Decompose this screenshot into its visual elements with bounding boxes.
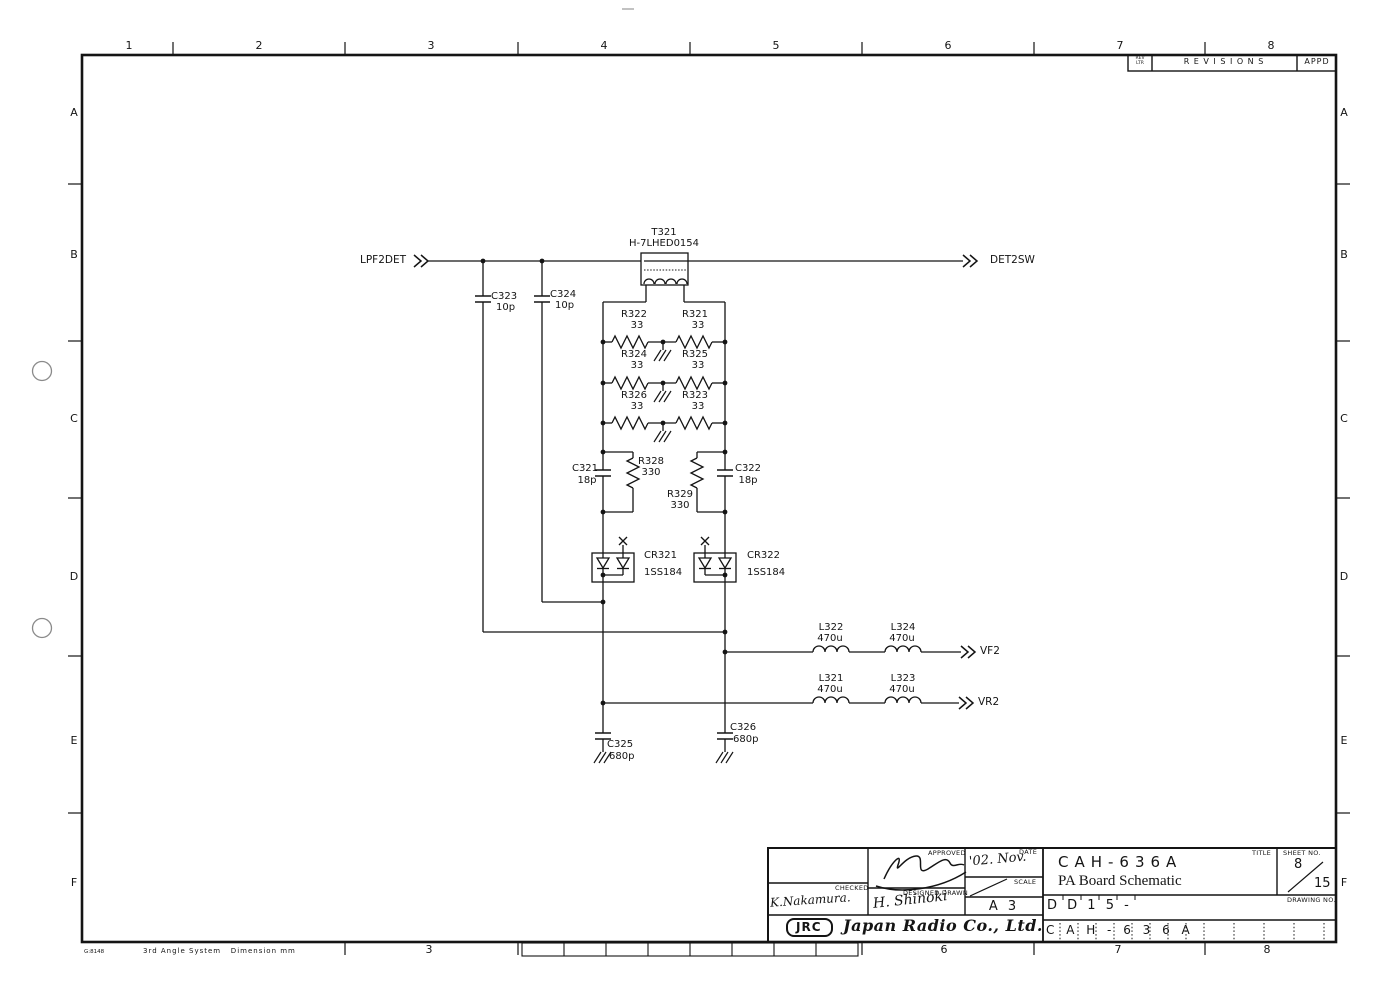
- junction-dots: [481, 259, 728, 706]
- label-l321-ref: L321: [819, 673, 844, 684]
- zone-row-a-right: A: [1340, 107, 1348, 119]
- label-l322-ref: L322: [819, 622, 844, 633]
- zone-row-e-right: E: [1341, 735, 1348, 747]
- punch-holes: [33, 362, 52, 638]
- transformer-t321-symbol: [641, 253, 688, 285]
- label-l323-ref: L323: [891, 673, 916, 684]
- approved-signature: [876, 856, 966, 890]
- label-c321-ref: C321: [572, 463, 598, 474]
- drawing-canvas: [0, 0, 1400, 989]
- paper-size: A 3: [989, 900, 1019, 914]
- label-c322-ref: C322: [735, 463, 761, 474]
- title-label: TITLE: [1252, 850, 1271, 857]
- zone-row-d-right: D: [1340, 571, 1348, 583]
- company-name: Japan Radio Co., Ltd.: [843, 917, 1043, 935]
- port-label-vr2: VR2: [978, 697, 999, 709]
- zone-col-4: 4: [601, 40, 608, 52]
- label-c325-ref: C325: [607, 739, 633, 750]
- jrc-logo-text: JRC: [796, 921, 822, 934]
- label-r324-value: 33: [631, 360, 644, 371]
- zone-col-1: 1: [126, 40, 133, 52]
- label-cr322-ref: CR322: [747, 550, 780, 561]
- label-c326-value: 680p: [733, 734, 758, 745]
- zone-col-5: 5: [773, 40, 780, 52]
- zone-col-7: 7: [1117, 40, 1124, 52]
- label-r328-value: 330: [641, 467, 660, 478]
- zone-row-e-left: E: [71, 735, 78, 747]
- label-r321-value: 33: [692, 320, 705, 331]
- zone-row-d-left: D: [70, 571, 78, 583]
- drawing-number: C A H - 6 3 6 A: [1046, 924, 1194, 937]
- zone-col-8-bottom: 8: [1264, 944, 1271, 956]
- port-label-vf2: VF2: [980, 646, 1000, 658]
- label-r323-value: 33: [692, 401, 705, 412]
- scale-bar: [522, 943, 858, 956]
- label-t321-ref: T321: [651, 227, 676, 238]
- sheet-border: [68, 9, 1350, 955]
- port-label-lpf2det: LPF2DET: [360, 255, 406, 267]
- label-l321-value: 470u: [817, 684, 842, 695]
- label-c324-value: 10p: [555, 300, 574, 311]
- label-r321-ref: R321: [682, 309, 708, 320]
- label-c323-ref: C323: [491, 291, 517, 302]
- zone-col-2: 2: [256, 40, 263, 52]
- label-cr322-part: 1SS184: [747, 567, 785, 578]
- label-c325-value: 680p: [609, 751, 634, 762]
- label-l324-ref: L324: [891, 622, 916, 633]
- label-c322-value: 18p: [738, 475, 757, 486]
- label-c321-value: 18p: [577, 475, 596, 486]
- zone-col-3-bottom: 3: [426, 944, 433, 956]
- label-r323-ref: R323: [682, 390, 708, 401]
- zone-row-f-left: F: [71, 877, 77, 889]
- label-r326-ref: R326: [621, 390, 647, 401]
- zone-col-7-bottom: 7: [1115, 944, 1122, 956]
- label-r324-ref: R324: [621, 349, 647, 360]
- approved-label: APPROVED: [928, 850, 966, 857]
- document-title: PA Board Schematic: [1058, 873, 1182, 890]
- rev-ltr-label: REVLTR: [1129, 56, 1151, 66]
- label-r325-value: 33: [692, 360, 705, 371]
- footer-note: 3rd Angle System Dimension mm: [143, 948, 296, 956]
- zone-row-b-left: B: [70, 249, 78, 261]
- label-c326-ref: C326: [730, 722, 756, 733]
- port-label-det2sw: DET2SW: [990, 255, 1035, 267]
- scale-label: SCALE: [1014, 879, 1036, 886]
- drawing-code: D D 1 5 -: [1047, 899, 1132, 913]
- label-r329-value: 330: [670, 500, 689, 511]
- label-r328-ref: R328: [638, 456, 664, 467]
- label-r322-ref: R322: [621, 309, 647, 320]
- label-r325-ref: R325: [682, 349, 708, 360]
- schematic-sheet: 1 2 3 4 5 6 7 8 3 6 7 8 A B C D E F A B …: [0, 0, 1400, 989]
- label-l323-value: 470u: [889, 684, 914, 695]
- label-r322-value: 33: [631, 320, 644, 331]
- schematic-wires: [428, 261, 963, 752]
- sheet-total: 15: [1314, 877, 1331, 891]
- label-cr321-ref: CR321: [644, 550, 677, 561]
- label-l324-value: 470u: [889, 633, 914, 644]
- drawing-no-label: DRAWING NO.: [1287, 897, 1336, 904]
- zone-row-b-right: B: [1340, 249, 1348, 261]
- revisions-heading: R E V I S I O N S: [1184, 58, 1265, 67]
- zone-row-c-left: C: [70, 413, 78, 425]
- label-t321-part: H-7LHED0154: [629, 238, 699, 249]
- zone-col-6-bottom: 6: [941, 944, 948, 956]
- footer-code: G:8148: [84, 949, 104, 955]
- label-c323-value: 10p: [496, 302, 515, 313]
- label-r326-value: 33: [631, 401, 644, 412]
- zone-col-6: 6: [945, 40, 952, 52]
- zone-col-8: 8: [1268, 40, 1275, 52]
- label-c324-ref: C324: [550, 289, 576, 300]
- label-r329-ref: R329: [667, 489, 693, 500]
- label-l322-value: 470u: [817, 633, 842, 644]
- label-cr321-part: 1SS184: [644, 567, 682, 578]
- zone-row-a-left: A: [70, 107, 78, 119]
- zone-col-3: 3: [428, 40, 435, 52]
- sheet-number: 8: [1294, 858, 1302, 872]
- zone-row-c-right: C: [1340, 413, 1348, 425]
- model-number: CAH-636A: [1058, 854, 1182, 871]
- zone-row-f-right: F: [1341, 877, 1347, 889]
- appd-label: APPD: [1304, 58, 1329, 67]
